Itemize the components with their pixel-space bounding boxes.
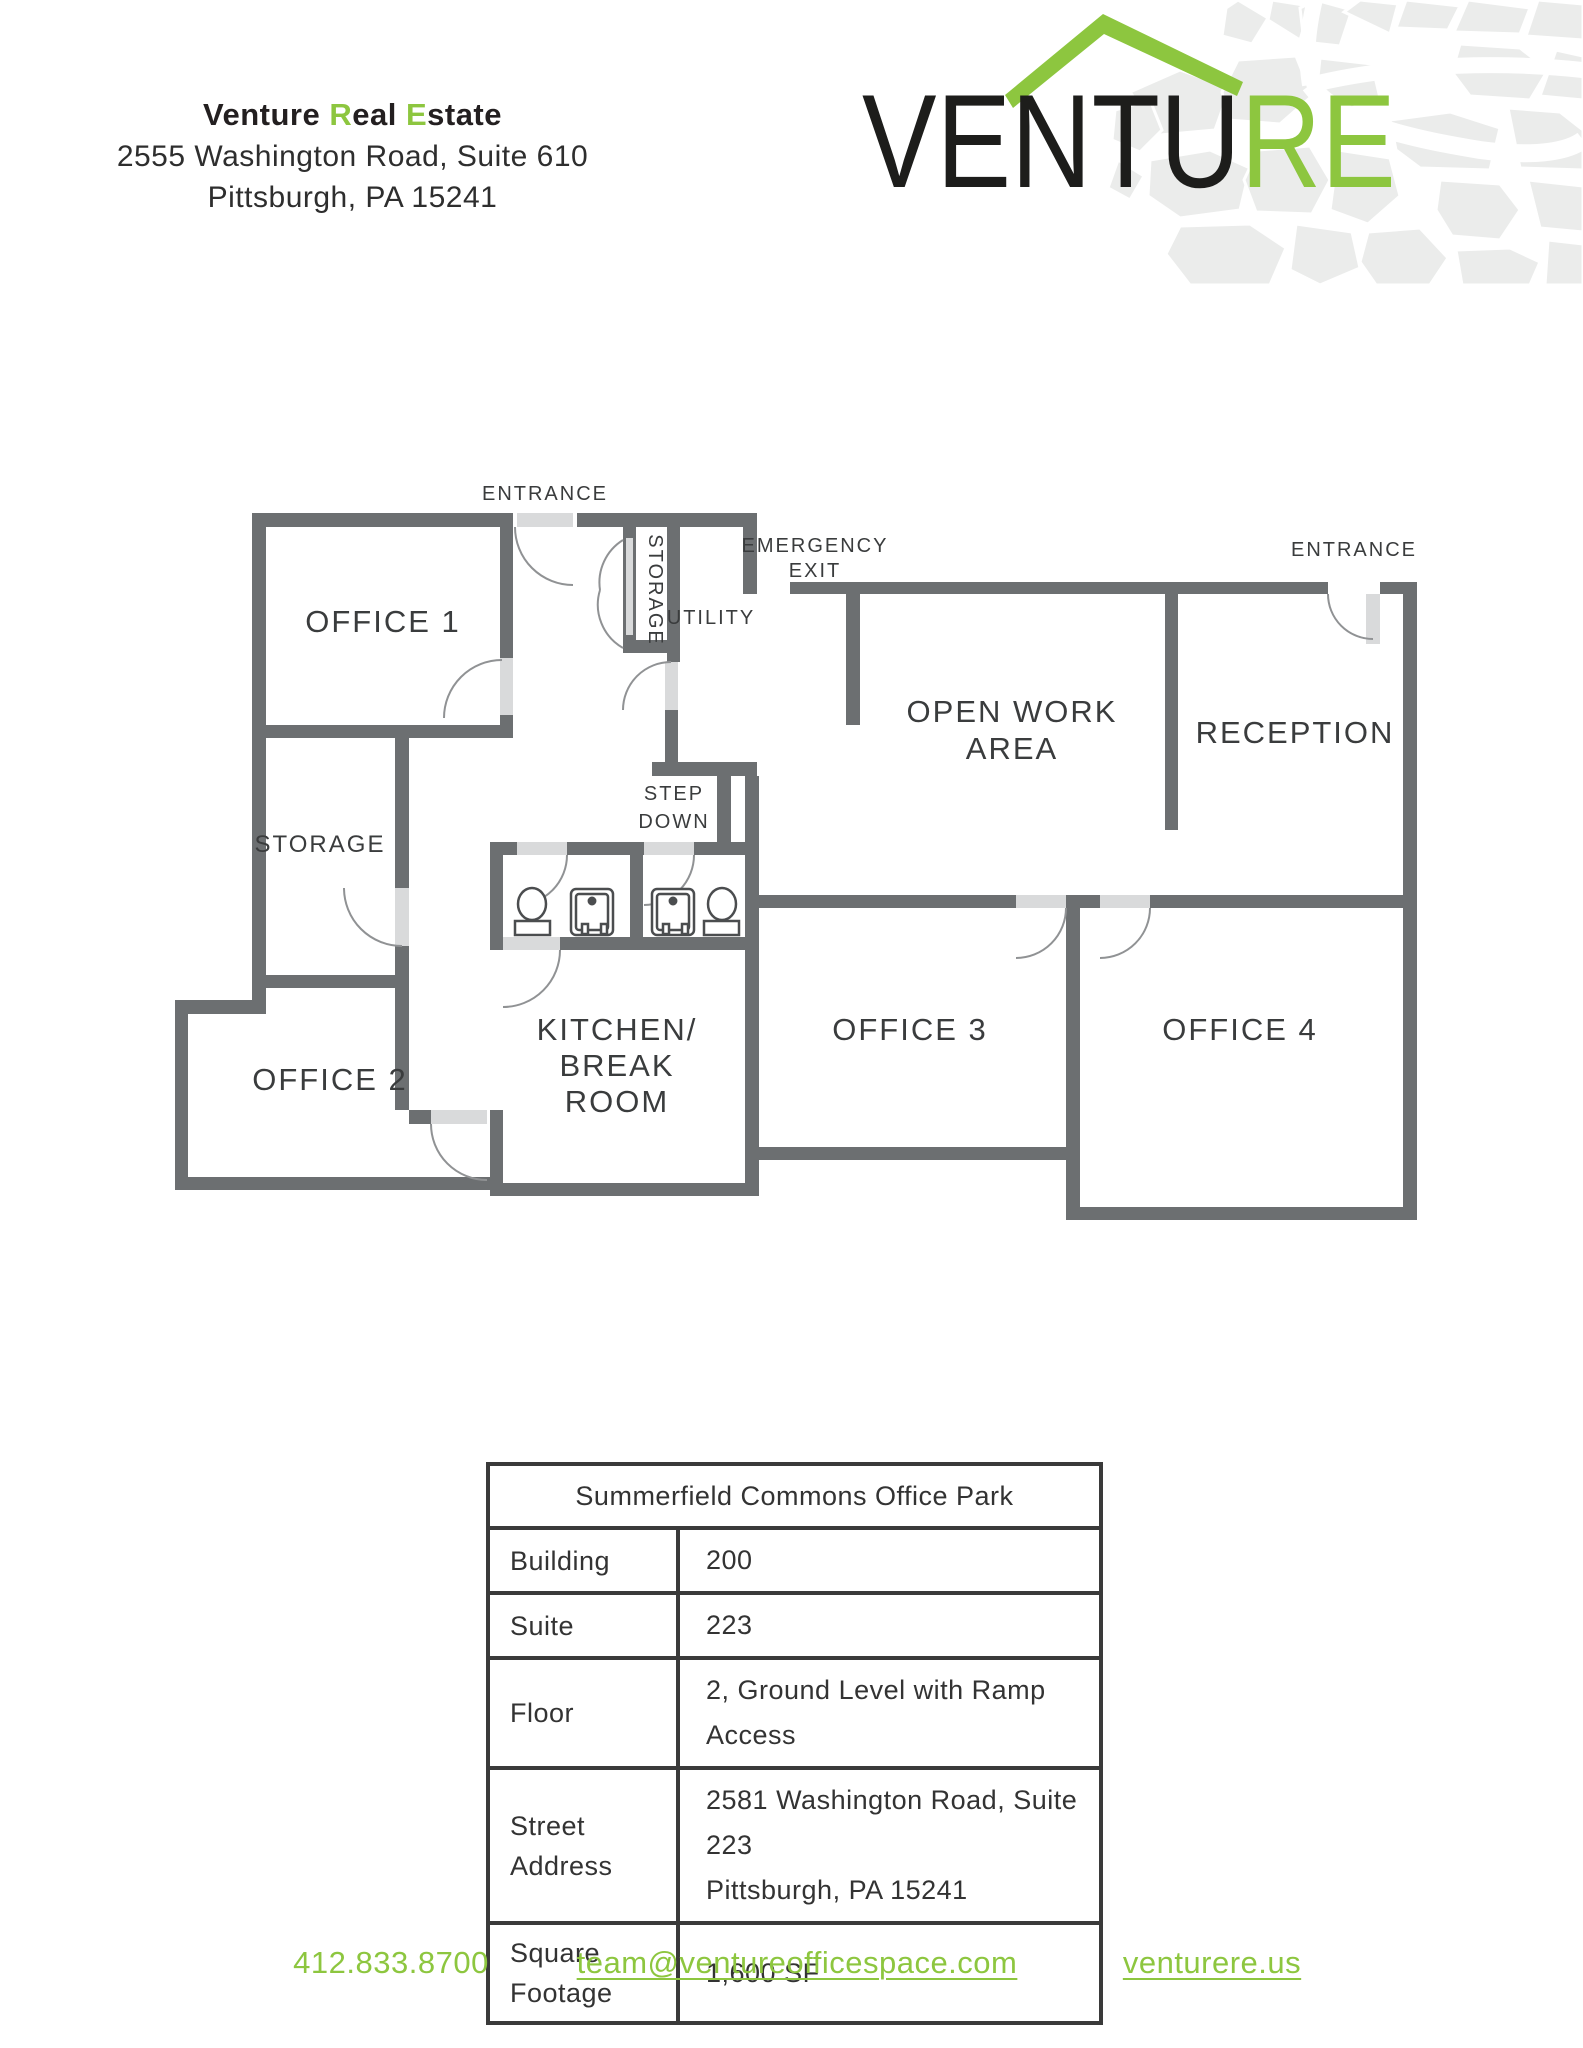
table-row: Suite 223	[490, 1591, 1099, 1656]
venture-logo: VENTURE	[840, 0, 1583, 292]
row-label-suite: Suite	[490, 1595, 680, 1656]
room-label-open-work-area-line2: AREA	[966, 731, 1058, 766]
company-header: Venture Real Estate 2555 Washington Road…	[100, 94, 605, 218]
toilet-icon	[704, 888, 739, 935]
company-name-part: eal	[352, 97, 406, 132]
footer-website-link[interactable]: venturere.us	[1123, 1945, 1301, 1981]
room-label-office-4: OFFICE 4	[1162, 1012, 1318, 1047]
row-label-street-address: Street Address	[490, 1770, 680, 1921]
company-name-green-e: E	[406, 97, 427, 132]
company-name-green-r: R	[329, 97, 352, 132]
company-address-line2: Pittsburgh, PA 15241	[100, 177, 605, 218]
company-name-part: state	[427, 97, 502, 132]
label-entrance-right: ENTRANCE	[1291, 539, 1417, 561]
sink-icon	[571, 889, 613, 935]
room-label-kitchen-line1: KITCHEN/	[537, 1012, 698, 1047]
label-step-down-line1: STEP	[644, 783, 704, 805]
room-label-kitchen-line3: ROOM	[565, 1084, 669, 1119]
label-entrance-top: ENTRANCE	[482, 483, 608, 505]
label-step-down-line2: DOWN	[638, 811, 709, 833]
room-label-utility: UTILITY	[667, 607, 755, 629]
footer-phone: 412.833.8700	[293, 1945, 489, 1981]
room-label-reception: RECEPTION	[1196, 715, 1395, 750]
room-label-kitchen-line2: BREAK	[559, 1048, 674, 1083]
table-row: Floor 2, Ground Level with Ramp Access	[490, 1656, 1099, 1766]
room-label-office-3: OFFICE 3	[832, 1012, 988, 1047]
footer-email-link[interactable]: team@ventureofficespace.com	[577, 1945, 1018, 1981]
room-label-open-work-area-line1: OPEN WORK	[907, 694, 1118, 729]
row-label-floor: Floor	[490, 1660, 680, 1766]
property-details-table: Summerfield Commons Office Park Building…	[486, 1462, 1103, 2025]
svg-text:VENTURE: VENTURE	[862, 68, 1396, 216]
label-emergency-exit-line1: EMERGENCY	[742, 535, 889, 557]
logo-text-green: RE	[1241, 68, 1396, 216]
row-label-building: Building	[490, 1530, 680, 1591]
company-name-part: Venture	[203, 97, 329, 132]
table-row: Building 200	[490, 1526, 1099, 1591]
row-value-building: 200	[680, 1530, 1099, 1591]
row-value-suite: 223	[680, 1595, 1099, 1656]
toilet-icon	[515, 888, 550, 935]
row-value-street-address: 2581 Washington Road, Suite 223 Pittsbur…	[680, 1770, 1099, 1921]
company-address-line1: 2555 Washington Road, Suite 610	[100, 136, 605, 177]
logo-wordmark: VENTURE	[862, 68, 1396, 216]
floor-plan: ENTRANCE OFFICE 1 STORAGE UTILITY EMERGE…	[150, 470, 1440, 1240]
row-value-floor: 2, Ground Level with Ramp Access	[680, 1660, 1099, 1766]
table-title: Summerfield Commons Office Park	[490, 1466, 1099, 1526]
room-label-office-1: OFFICE 1	[305, 604, 461, 639]
company-name: Venture Real Estate	[100, 94, 605, 136]
label-storage-closet: STORAGE	[644, 534, 666, 645]
sink-icon	[652, 889, 694, 935]
room-label-storage: STORAGE	[255, 831, 386, 858]
table-row: Street Address 2581 Washington Road, Sui…	[490, 1766, 1099, 1921]
logo-text-black: VENTU	[862, 68, 1241, 216]
label-emergency-exit-line2: EXIT	[789, 560, 841, 582]
room-label-office-2: OFFICE 2	[252, 1062, 408, 1097]
